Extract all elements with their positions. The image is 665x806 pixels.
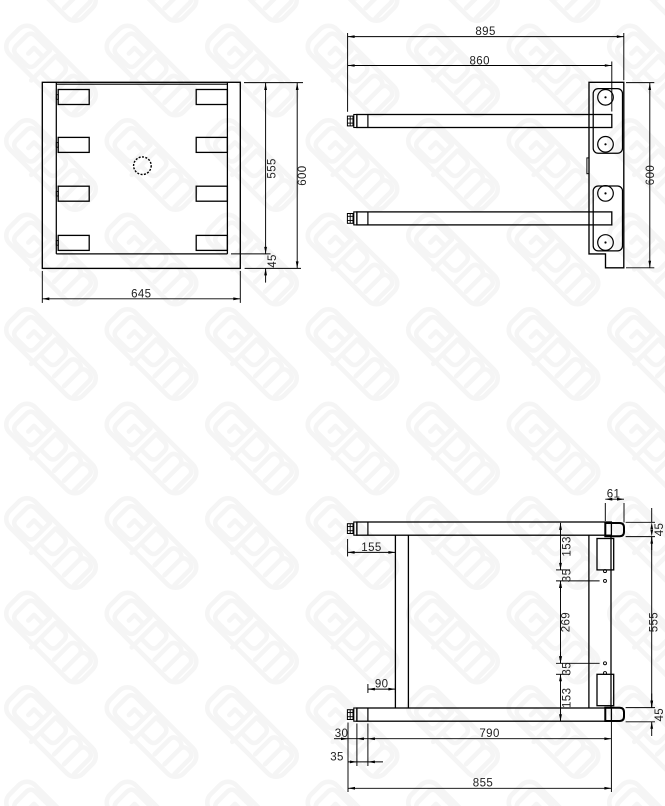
svg-text:45: 45	[267, 254, 279, 268]
svg-text:35: 35	[562, 662, 574, 676]
svg-text:895: 895	[475, 26, 495, 38]
svg-text:855: 855	[473, 778, 493, 790]
svg-text:155: 155	[361, 542, 381, 554]
svg-text:61: 61	[607, 489, 621, 501]
svg-text:90: 90	[375, 679, 389, 691]
svg-text:860: 860	[470, 55, 490, 67]
svg-text:45: 45	[654, 708, 665, 722]
svg-text:555: 555	[266, 158, 278, 178]
svg-text:35: 35	[562, 569, 574, 583]
svg-text:45: 45	[654, 523, 665, 537]
svg-text:645: 645	[131, 288, 151, 300]
svg-text:600: 600	[645, 165, 657, 185]
svg-text:153: 153	[562, 536, 574, 556]
svg-text:153: 153	[562, 688, 574, 708]
svg-text:30: 30	[335, 728, 349, 740]
svg-text:555: 555	[648, 612, 660, 632]
svg-text:35: 35	[330, 751, 344, 763]
svg-text:790: 790	[479, 728, 499, 740]
svg-text:269: 269	[560, 612, 572, 632]
svg-text:600: 600	[297, 165, 309, 185]
